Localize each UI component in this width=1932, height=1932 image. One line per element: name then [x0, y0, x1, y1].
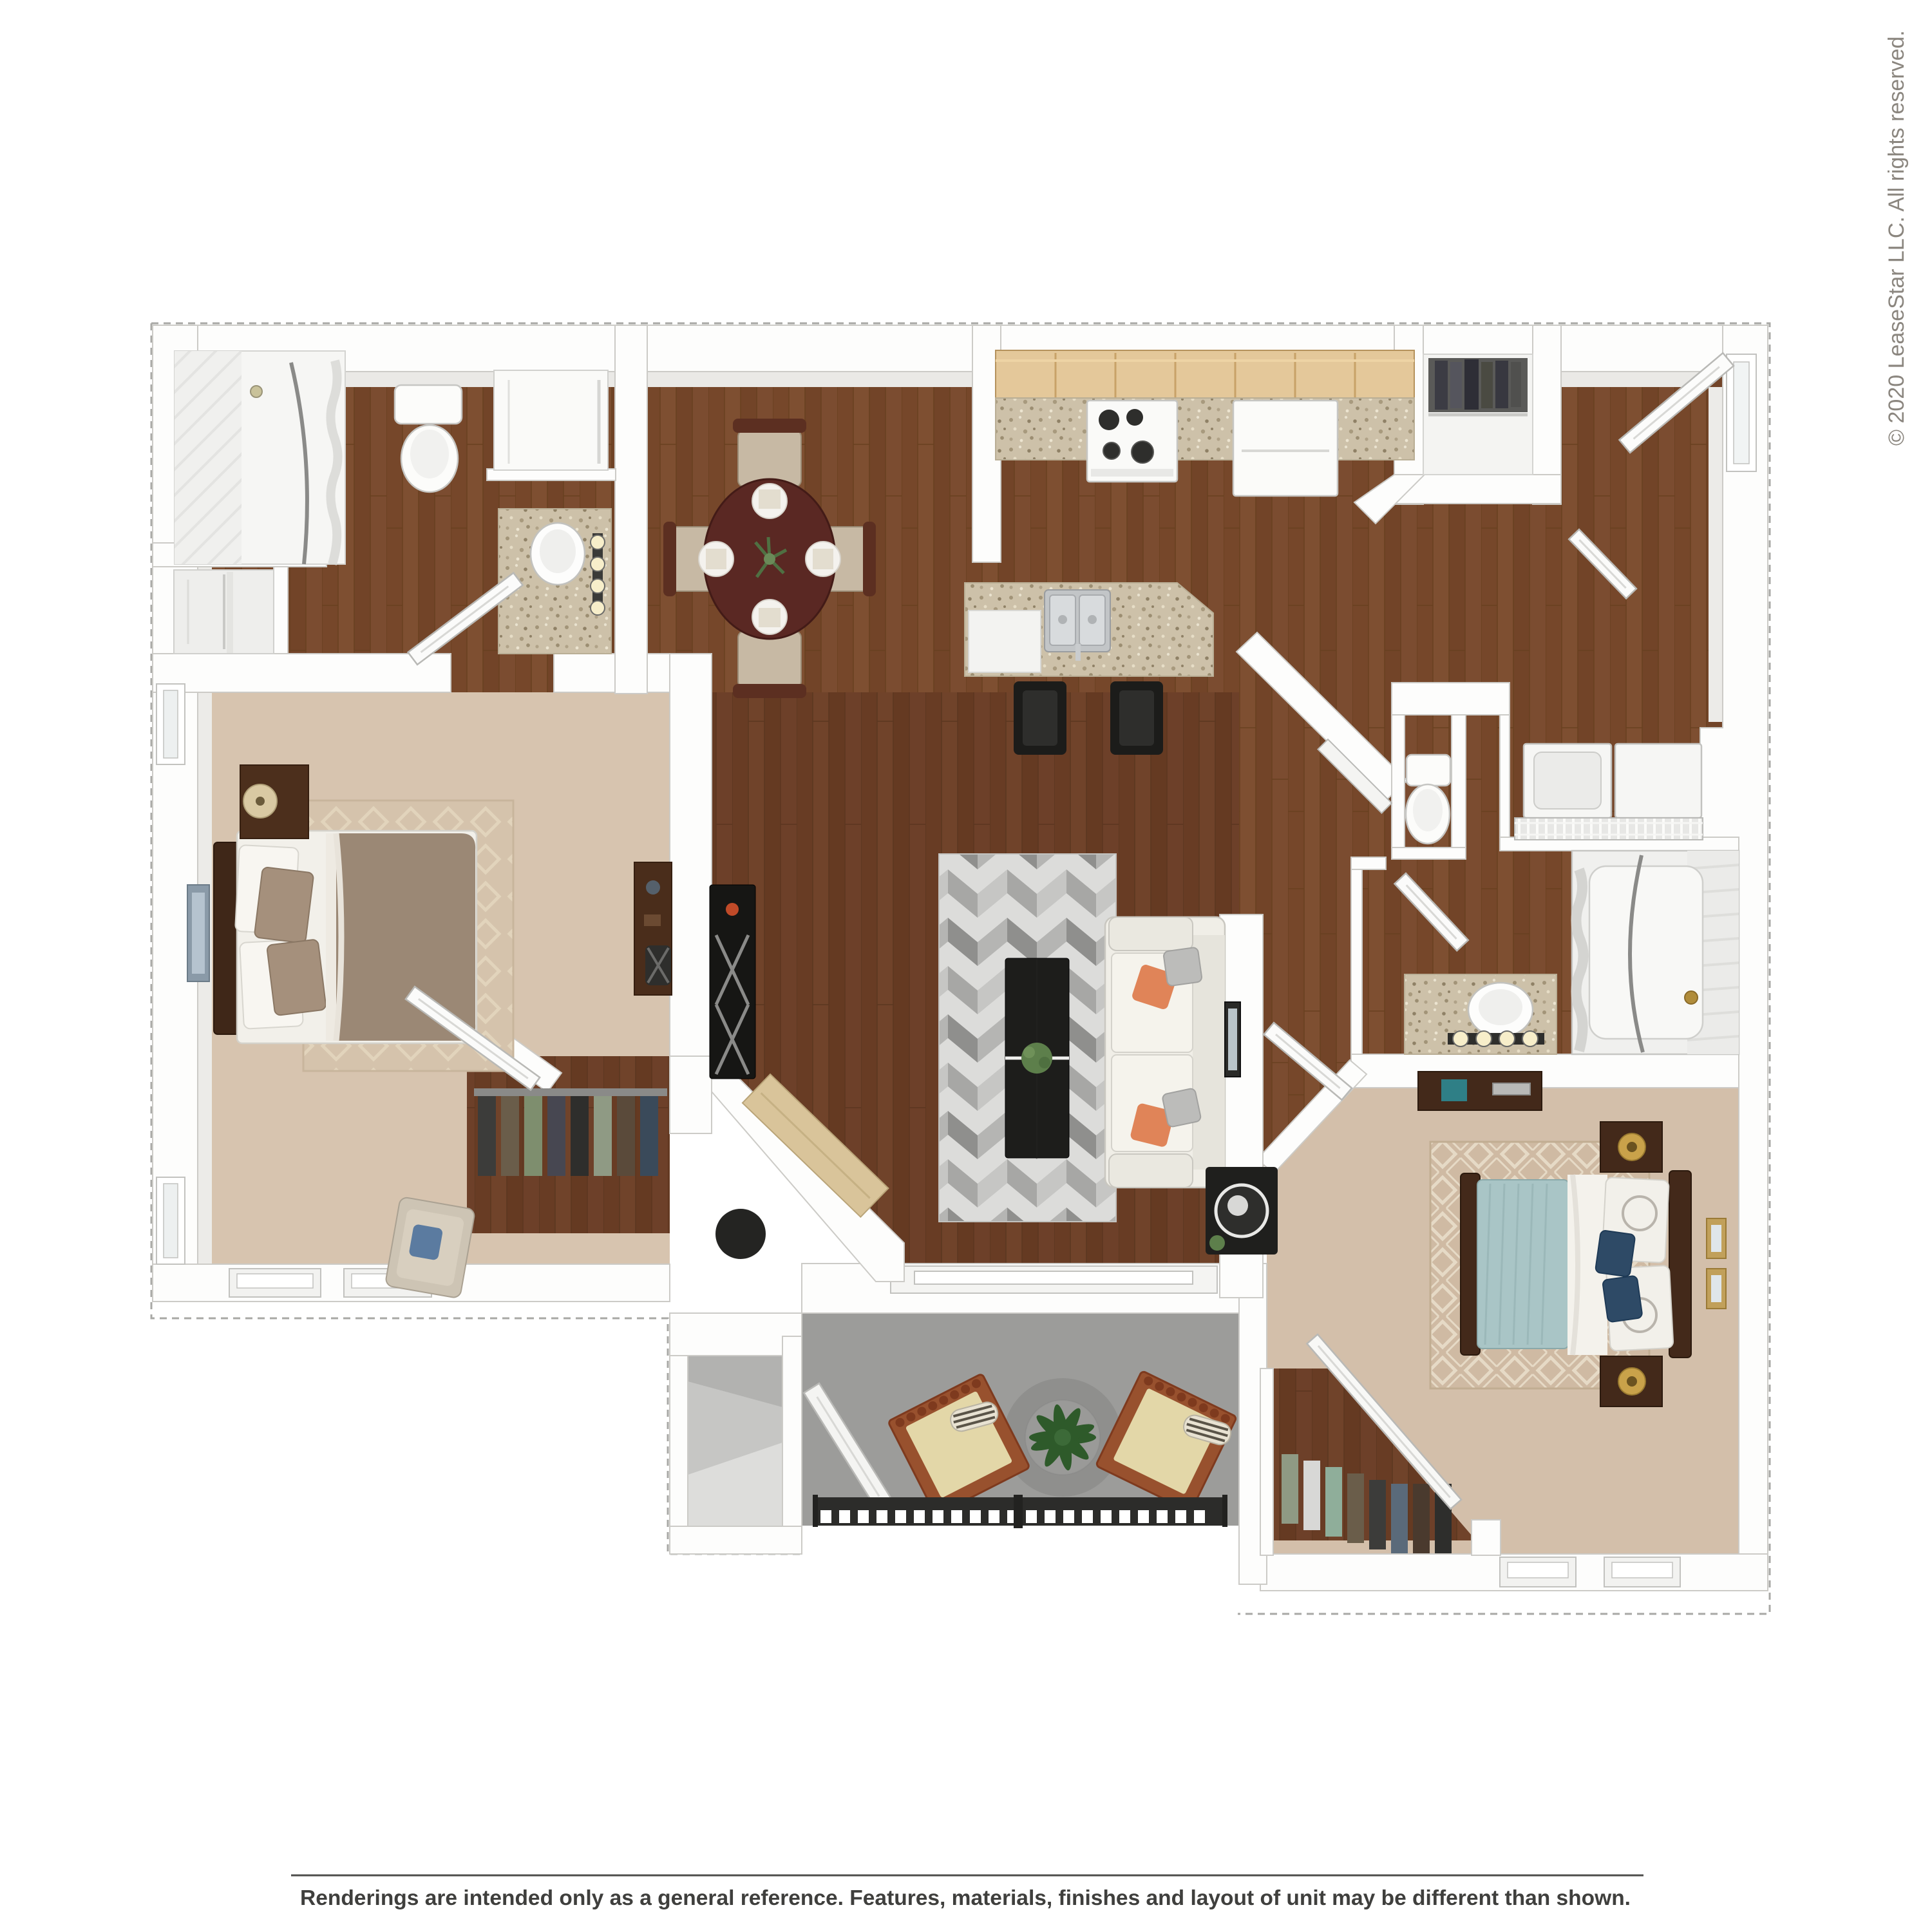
svg-text:© 2020 LeaseStar LLC. All righ: © 2020 LeaseStar LLC. All rights reserve…	[1884, 30, 1909, 446]
svg-text:Renderings are intended only a: Renderings are intended only as a genera…	[300, 1886, 1631, 1909]
